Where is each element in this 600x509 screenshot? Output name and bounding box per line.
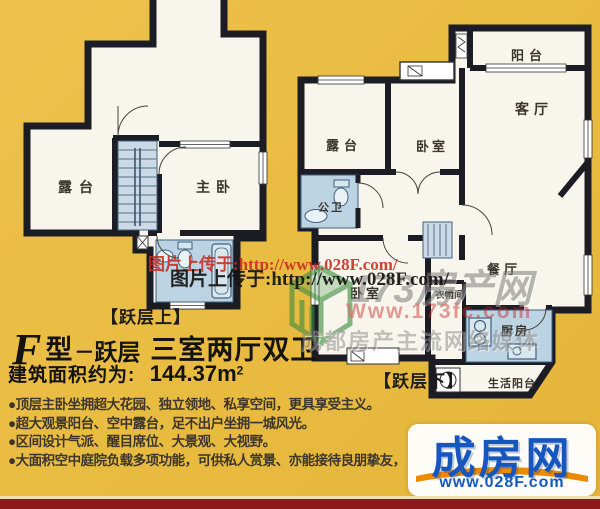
upload-watermark-black: 图片上传于:http://www.028F.com/ <box>170 264 449 291</box>
room-label-bedroom-upper: 卧室 <box>416 139 448 154</box>
room-label-living-room: 客厅 <box>514 101 553 117</box>
feature-item: ●超大观景阳台、空中露台，足不出户坐拥一城风光。 <box>8 415 406 434</box>
lower-plan-caption: 【跃层下】 <box>374 367 464 392</box>
feature-list: ●顶层主卧坐拥超大花园、独立领地、私享空间，更具享受主义。 ●超大观景阳台、空中… <box>8 396 406 470</box>
room-label-balcony: 阳台 <box>511 48 547 63</box>
logo-url-text: www.028F.com <box>408 474 596 492</box>
watermark-site-slogan: 成都房产主流网络媒体 <box>300 324 540 356</box>
feature-item: ●大面积空中庭院负载多项功能，可供私人赏景、亦能接待良朋挚友， <box>8 452 406 471</box>
upper-plan-hatch-box <box>137 236 148 249</box>
site-logo-card: 成房网 www.028F.com <box>408 424 596 496</box>
flyer-page: 露台 主卧 <box>0 0 600 509</box>
built-area-line: 建筑面积约为: 144.37m2 <box>8 360 243 387</box>
feature-item: ●顶层主卧坐拥超大花园、独立领地、私享空间，更具享受主义。 <box>8 396 406 415</box>
room-label-service-balcony: 生活阳台 <box>488 376 536 390</box>
bottom-red-band <box>0 496 600 509</box>
room-label-upper-terrace: 露台 <box>58 179 100 195</box>
room-label-master-bedroom: 主卧 <box>196 179 236 195</box>
built-area-exponent: 2 <box>237 364 244 378</box>
upper-stairs <box>118 141 157 230</box>
room-label-lower-terrace: 露台 <box>326 138 362 153</box>
watermark-site-url: Www.173fc.com <box>346 300 532 324</box>
room-label-bathroom: 公卫 <box>318 201 344 214</box>
built-area-label: 建筑面积约为: <box>8 365 135 386</box>
lower-ac-niche-top <box>400 62 454 80</box>
upper-plan-caption: 【跃层上】 <box>101 303 191 328</box>
feature-item: ●区间设计气派、醒目席位、大景观、大视野。 <box>8 433 406 452</box>
built-area-value: 144.37m <box>150 361 237 386</box>
